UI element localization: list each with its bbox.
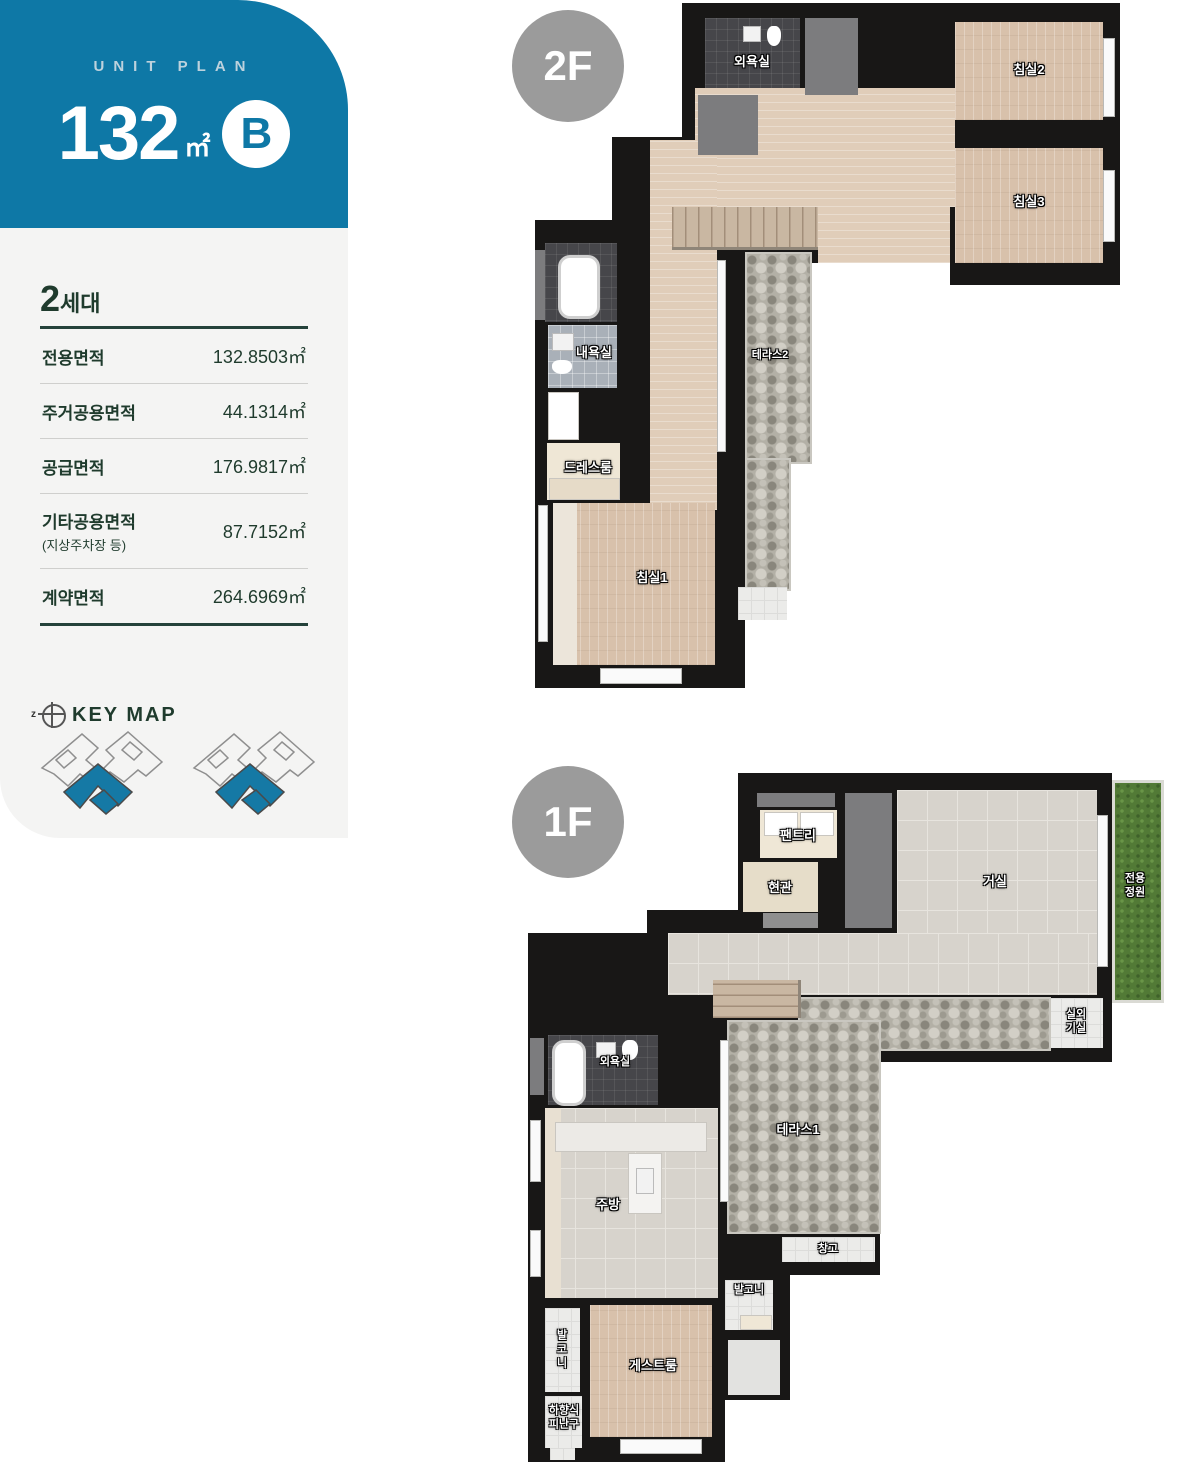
room-label-balcony-left: 발 코 니 <box>557 1329 567 1370</box>
balcony-mat <box>740 1315 772 1330</box>
room-label-bedroom2: 침실2 <box>1013 62 1044 78</box>
row-value: 264.6969㎡ <box>213 583 306 609</box>
window <box>620 1439 702 1454</box>
table-row: 공급면적 176.9817㎡ <box>40 439 308 494</box>
row-value: 44.1314㎡ <box>223 398 306 424</box>
toilet <box>552 360 572 374</box>
room-label-escape-hatch: 하향식 피난구 <box>549 1404 579 1432</box>
row-label-sub: (지상주차장 등) <box>42 535 136 554</box>
escape-step <box>550 1448 575 1460</box>
row-label: 주거공용면적 <box>42 399 136 424</box>
room-label-terrace2: 테라스2 <box>752 349 788 363</box>
room-label-outdoor-unit: 실외 기실 <box>1066 1008 1086 1036</box>
closet <box>845 793 892 928</box>
compass-letter: z <box>31 709 36 720</box>
room-label-private-garden: 전용 정원 <box>1125 872 1145 900</box>
keymap-building-left <box>42 732 162 814</box>
bedroom1-floor <box>553 503 715 665</box>
closet <box>548 392 579 440</box>
row-label: 공급면적 <box>42 454 105 479</box>
unit-size-number: 132 <box>58 96 179 172</box>
room-label-balcony-right: 발코니 <box>734 1284 764 1298</box>
sink <box>743 26 761 42</box>
household-count: 2세대 <box>40 278 101 320</box>
table-row: 주거공용면적 44.1314㎡ <box>40 384 308 439</box>
keymap-building-right <box>194 732 314 814</box>
landing-floor <box>818 196 950 263</box>
room-label-bedroom3: 침실3 <box>1013 194 1044 210</box>
room-label-bath-outer-1f: 외욕실 <box>600 1056 630 1070</box>
room-label-storage: 창고 <box>818 1243 838 1257</box>
area-table: 전용면적 132.8503㎡ 주거공용면적 44.1314㎡ 공급면적 176.… <box>40 326 308 626</box>
kitchen-counter <box>555 1122 707 1152</box>
unit-info-card: UNIT PLAN 132 ㎡ B 2세대 전용면적 132.8503㎡ 주거공… <box>0 0 348 838</box>
window <box>1103 170 1115 242</box>
dresser <box>549 478 620 500</box>
toilet <box>767 26 781 46</box>
stairs-2f <box>672 207 818 250</box>
window <box>538 505 548 642</box>
row-label: 기타공용면적 (지상주차장 등) <box>42 508 136 554</box>
room-label-living: 거실 <box>983 874 1007 890</box>
room-label-dressroom: 드레스룸 <box>564 460 612 476</box>
room-label-bath-inner: 내욕실 <box>576 345 612 361</box>
keymap-diagrams <box>34 730 324 825</box>
window <box>600 668 682 684</box>
bathtub <box>558 255 600 319</box>
unit-card-header: UNIT PLAN 132 ㎡ B <box>0 0 348 228</box>
row-label-main: 기타공용면적 <box>42 513 136 532</box>
entry-mat <box>763 913 818 928</box>
sink <box>552 333 574 351</box>
room-label-terrace1: 테라스1 <box>776 1122 819 1138</box>
terrace2-balcony <box>738 587 787 620</box>
closet <box>530 1038 544 1095</box>
household-suffix: 세대 <box>60 291 100 316</box>
closet <box>757 793 835 807</box>
floorplan-1f: 팬트리 현관 거실 전용 정원 실외 기실 외욕실 주방 테라스1 창고 발코니… <box>512 760 1200 1476</box>
compass-icon: z <box>38 702 64 728</box>
row-value: 87.7152㎡ <box>223 518 306 544</box>
room-label-kitchen: 주방 <box>596 1197 620 1213</box>
closet <box>535 250 545 320</box>
room-label-bedroom1: 침실1 <box>636 570 667 586</box>
corridor-floor <box>650 140 717 510</box>
terrace2-floor-lower <box>745 458 791 591</box>
closet <box>805 18 858 95</box>
household-number: 2 <box>40 278 60 319</box>
window <box>720 1040 729 1202</box>
room-label-entrance: 현관 <box>768 880 792 896</box>
keymap-header: z KEY MAP <box>38 702 177 728</box>
window <box>1103 38 1115 117</box>
closet <box>698 95 758 155</box>
unit-size-row: 132 ㎡ B <box>0 96 348 172</box>
wall <box>950 263 1120 285</box>
window <box>530 1120 541 1182</box>
stairs-1f <box>713 980 801 1018</box>
row-value: 176.9817㎡ <box>213 453 306 479</box>
keymap-title: KEY MAP <box>72 704 177 727</box>
unit-plan-page: UNIT PLAN 132 ㎡ B 2세대 전용면적 132.8503㎡ 주거공… <box>0 0 1200 1476</box>
row-label: 전용면적 <box>42 344 105 369</box>
kitchen-sink <box>636 1168 654 1194</box>
table-row: 계약면적 264.6969㎡ <box>40 569 308 623</box>
bedroom1-side <box>553 503 577 665</box>
room-label-pantry: 팬트리 <box>780 828 816 844</box>
floorplan-2f: 외욕실 침실2 침실3 내욕실 테라스2 드레스룸 침실1 <box>512 0 1172 700</box>
table-row: 전용면적 132.8503㎡ <box>40 329 308 384</box>
eyebrow-title: UNIT PLAN <box>0 58 348 75</box>
row-label: 계약면적 <box>42 584 105 609</box>
bathtub <box>552 1040 586 1106</box>
row-value: 132.8503㎡ <box>213 343 306 369</box>
window <box>717 260 726 452</box>
window <box>530 1230 541 1277</box>
window <box>1097 815 1108 967</box>
outdoor-patio-tile <box>728 1340 780 1395</box>
room-label-bath-outer: 외욕실 <box>734 54 770 70</box>
room-label-guestroom: 게스트룸 <box>629 1358 677 1374</box>
table-row: 기타공용면적 (지상주차장 등) 87.7152㎡ <box>40 494 308 569</box>
unit-size-unit: ㎡ <box>184 127 210 164</box>
unit-type-badge: B <box>222 100 290 168</box>
